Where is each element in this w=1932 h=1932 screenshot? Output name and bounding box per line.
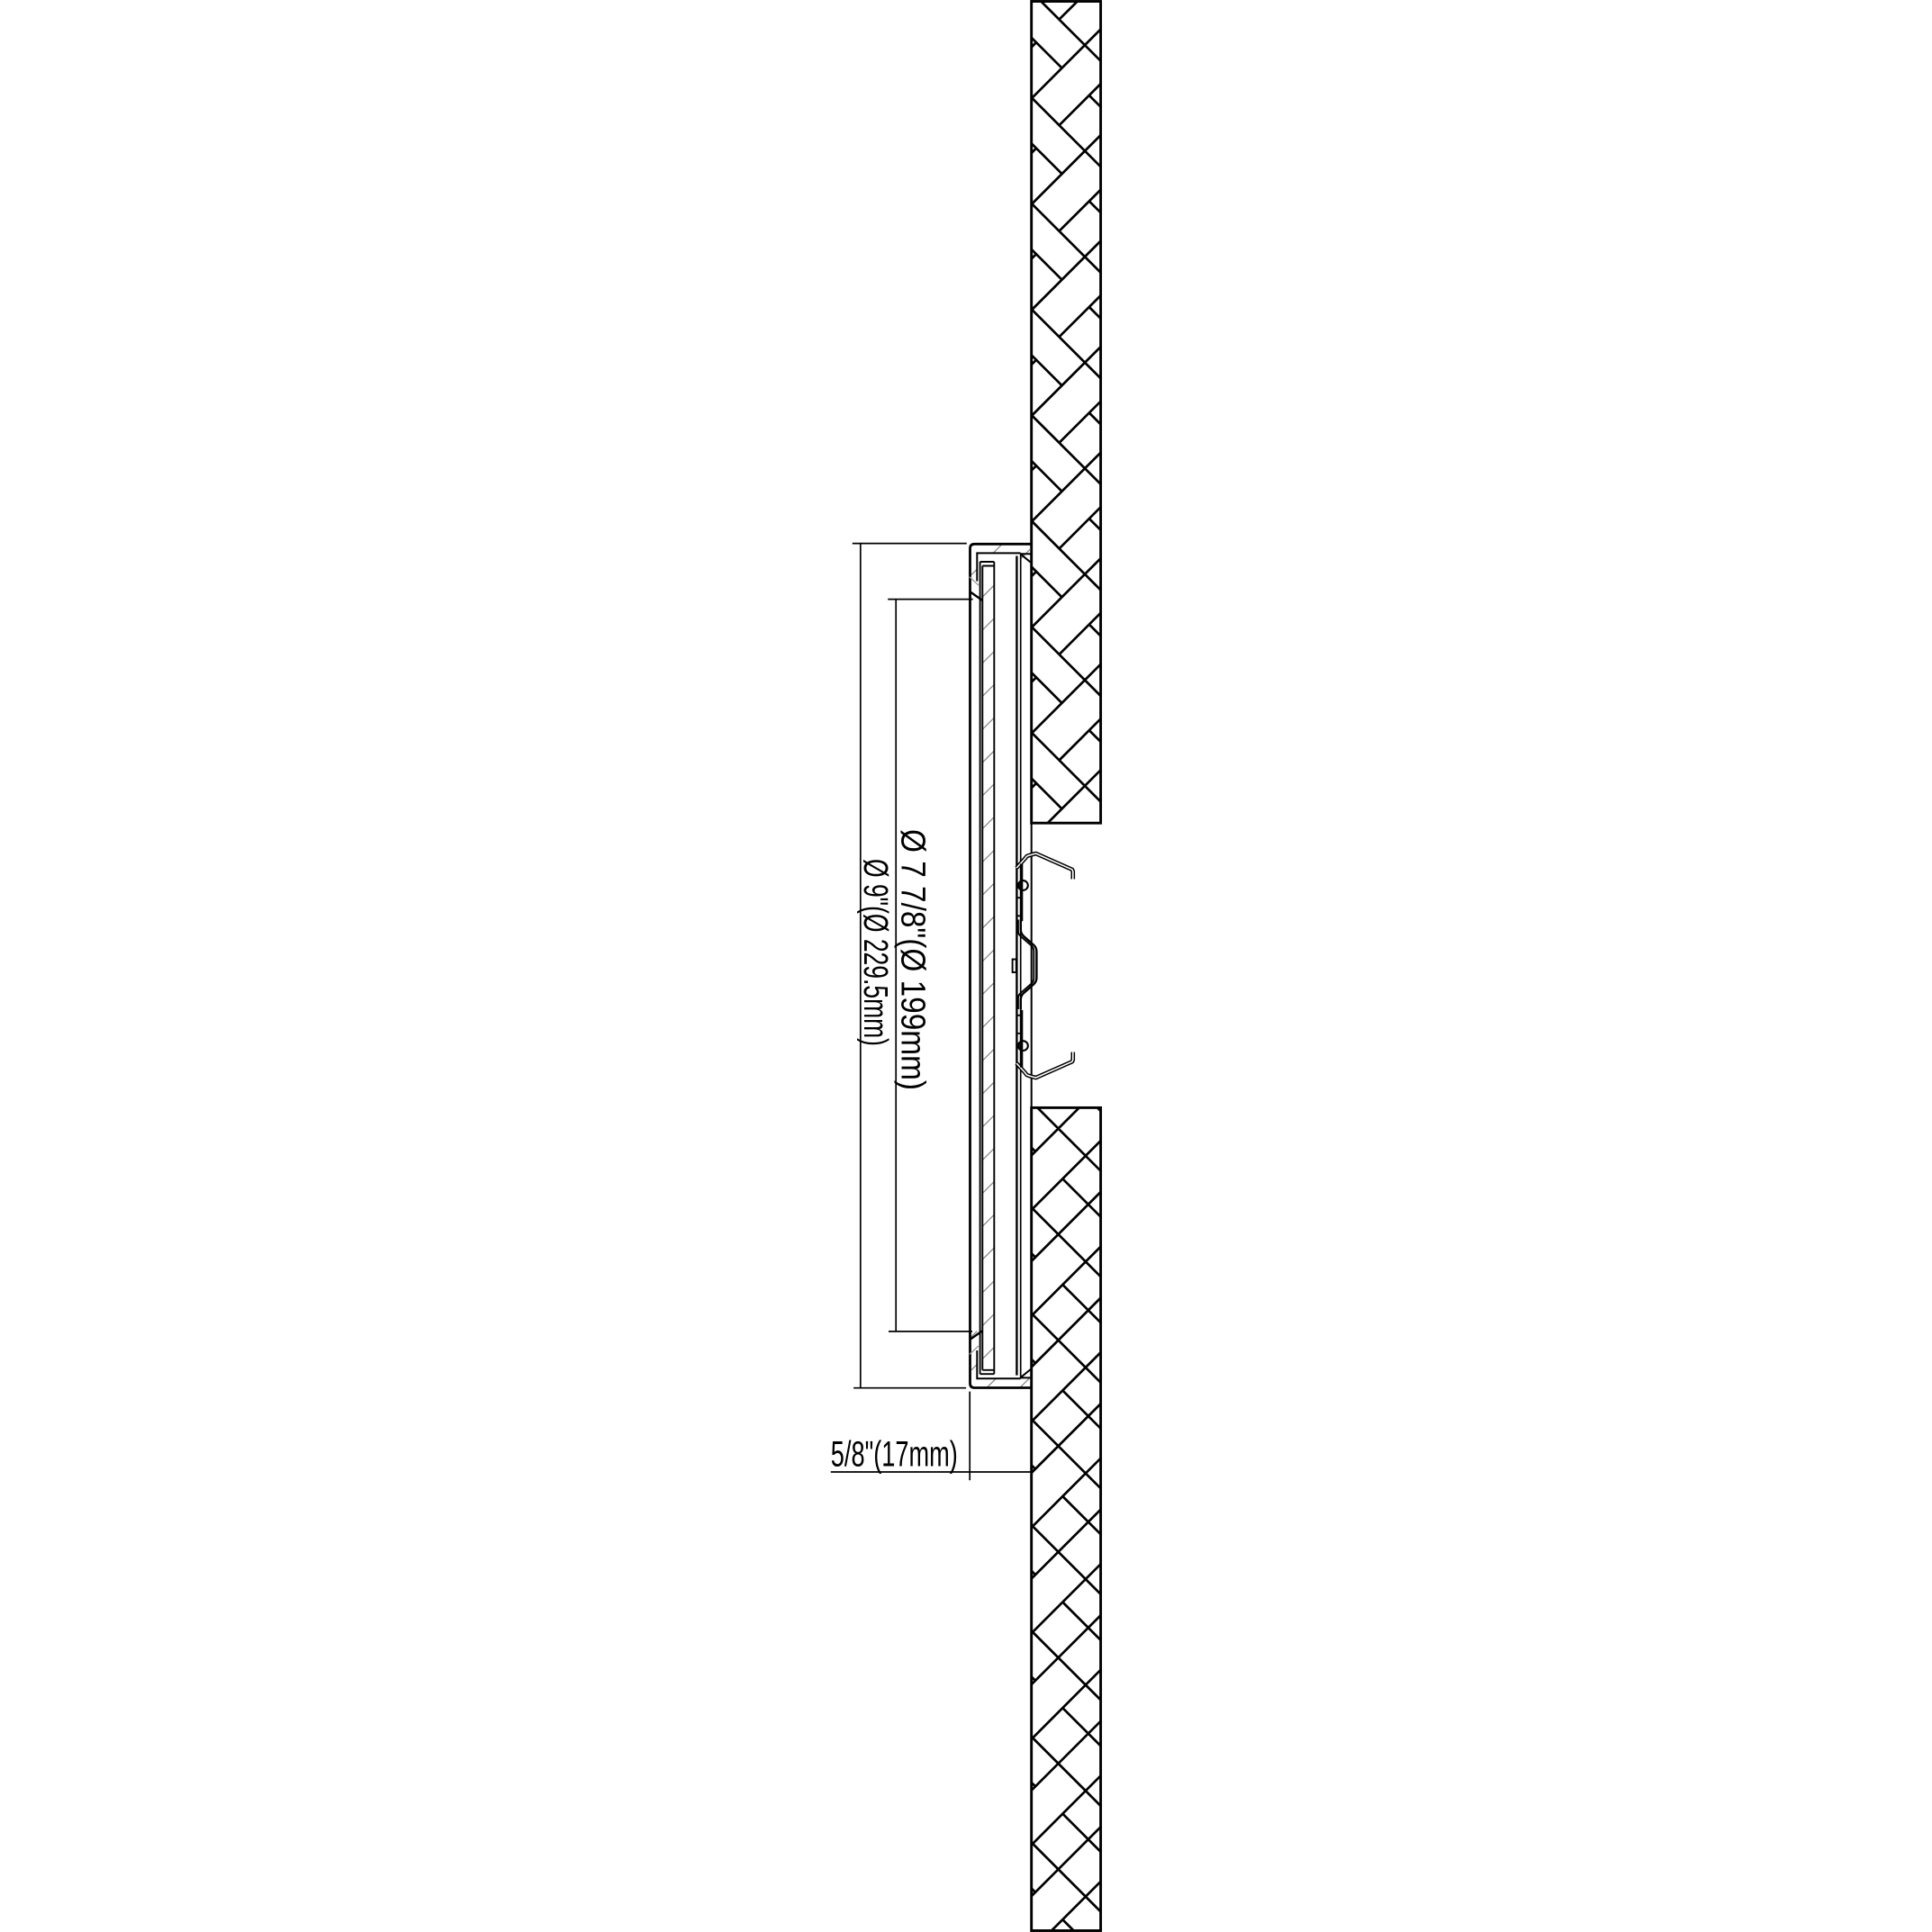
svg-text:5/8"(17mm): 5/8"(17mm) [831, 1434, 958, 1474]
svg-text:Ø 7 7/8"(Ø 199mm): Ø 7 7/8"(Ø 199mm) [894, 829, 932, 1090]
svg-text:Ø 9"(Ø 229.5mm): Ø 9"(Ø 229.5mm) [856, 859, 894, 1046]
